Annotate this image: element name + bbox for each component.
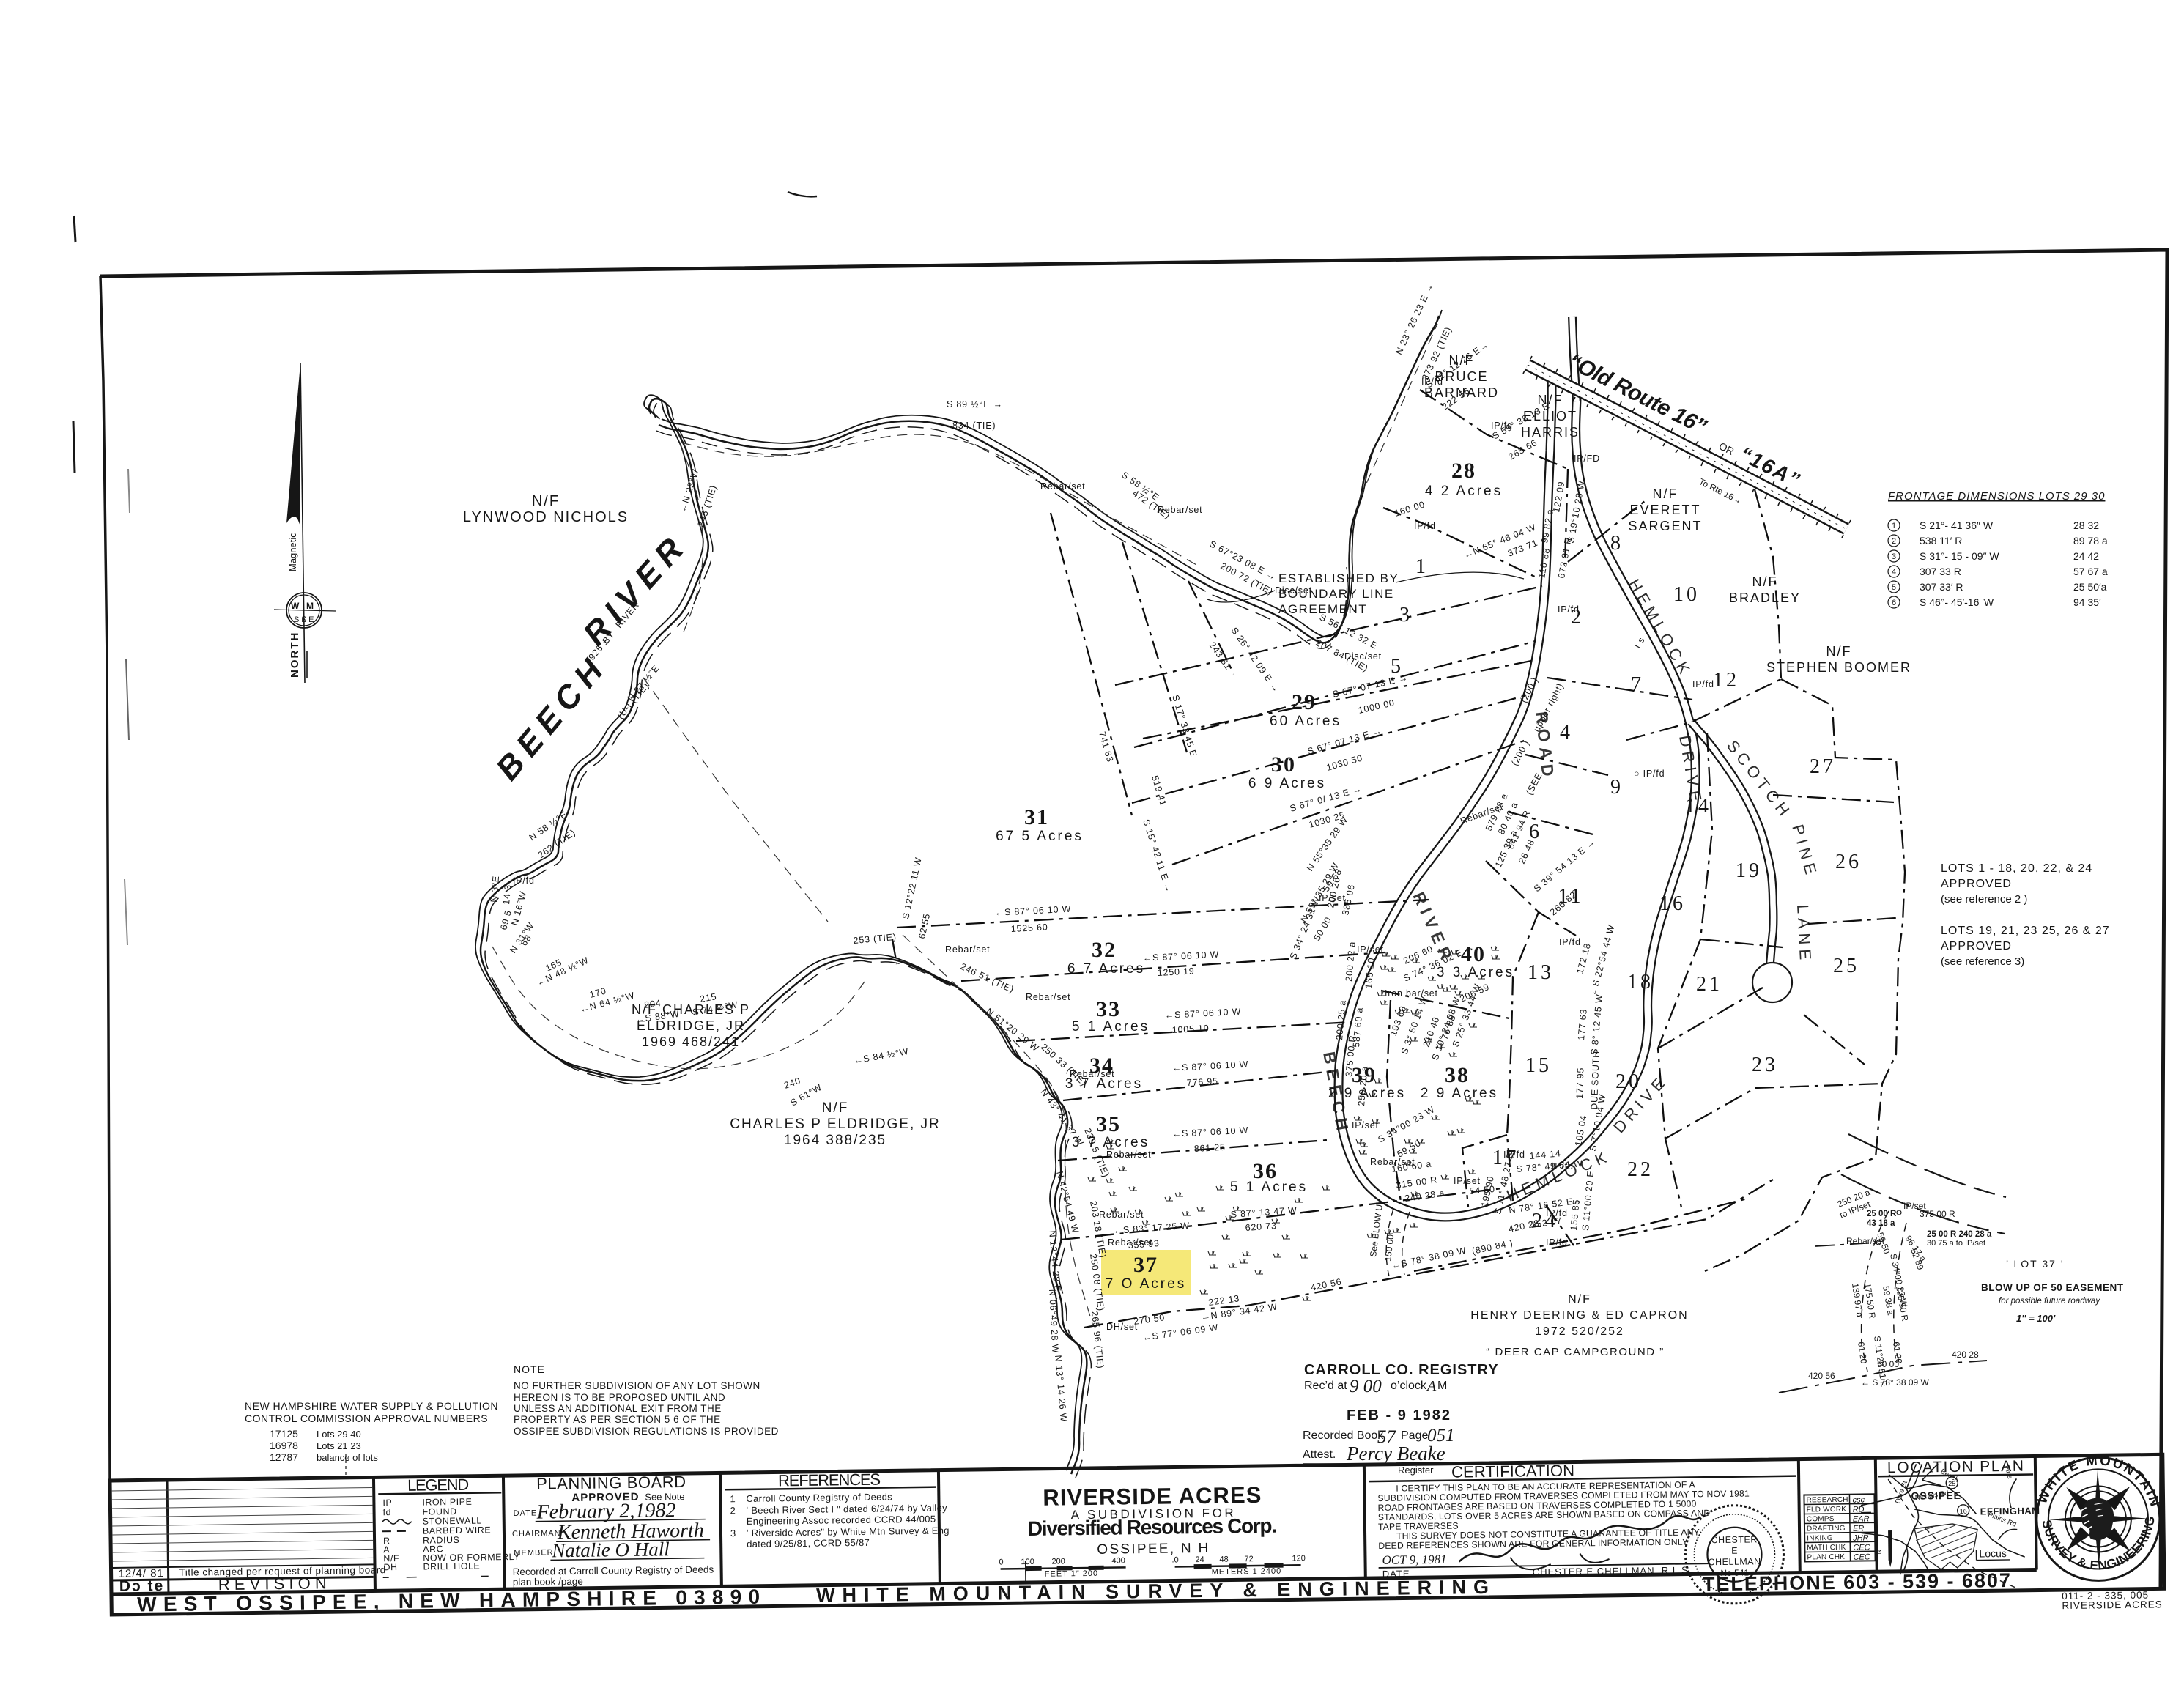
svg-text:16: 16: [1659, 892, 1686, 915]
svg-text:834 (TIE): 834 (TIE): [952, 421, 996, 431]
svg-text:3: 3: [730, 1528, 736, 1539]
svg-text:CHESTER E CHELLMAN, R L S: CHESTER E CHELLMAN, R L S: [1533, 1565, 1689, 1578]
svg-text:S 21°- 41 36″ W: S 21°- 41 36″ W: [1920, 519, 1994, 531]
svg-text:Rebar/set: Rebar/set: [1099, 1210, 1144, 1220]
svg-text:Rebar/set: Rebar/set: [1040, 481, 1085, 492]
svg-text:33: 33: [1096, 997, 1121, 1021]
svg-text:CONTROL COMMISSION APPROVAL: CONTROL COMMISSION APPROVAL NUMBERS: [245, 1413, 488, 1424]
svg-text:4: 4: [1560, 721, 1573, 744]
svg-text:Register: Register: [1398, 1465, 1434, 1476]
svg-text:5: 5: [1892, 583, 1896, 592]
svg-text:0: 0: [999, 1558, 1003, 1566]
svg-text:200: 200: [1051, 1557, 1065, 1566]
svg-text:1: 1: [730, 1493, 736, 1504]
svg-text:3: 3: [1399, 604, 1413, 626]
svg-text:dated 9/25/81, CCRD 55/87: dated 9/25/81, CCRD 55/87: [747, 1537, 870, 1550]
svg-text:307 33′ R: 307 33′ R: [1920, 581, 1963, 593]
svg-text:IP/set: IP/set: [1357, 944, 1384, 955]
svg-text:420 28: 420 28: [1952, 1350, 1979, 1360]
svg-text:IP/FD: IP/FD: [1574, 454, 1600, 464]
svg-text:MEMBER: MEMBER: [514, 1548, 553, 1558]
svg-text:IP/fd: IP/fd: [1546, 1208, 1568, 1218]
svg-text:25 00 R 240 28 a: 25 00 R 240 28 a: [1927, 1230, 1992, 1239]
svg-text:24: 24: [1195, 1555, 1204, 1564]
svg-text:FEB - 9 1982: FEB - 9 1982: [1347, 1407, 1451, 1424]
svg-text:32: 32: [1092, 938, 1117, 962]
svg-text:21: 21: [1696, 973, 1722, 996]
svg-text:S 31°- 15 - 09″ W: S 31°- 15 - 09″ W: [1920, 550, 1999, 562]
svg-text:13: 13: [1528, 961, 1554, 984]
svg-text:89 78 a: 89 78 a: [2073, 535, 2108, 547]
svg-text:SARGENT: SARGENT: [1628, 519, 1702, 533]
svg-text:12787: 12787: [270, 1451, 298, 1463]
svg-text:1: 1: [1892, 522, 1896, 530]
svg-text:16978: 16978: [270, 1440, 298, 1451]
svg-text:100: 100: [1021, 1558, 1034, 1566]
svg-text:538 11′ R: 538 11′ R: [1920, 535, 1962, 547]
svg-text:1005 10: 1005 10: [1171, 1023, 1209, 1035]
svg-text:IP/set: IP/set: [1454, 1176, 1481, 1186]
svg-text:Rebar/set: Rebar/set: [945, 944, 990, 955]
svg-text:Attest.: Attest.: [1303, 1448, 1336, 1461]
svg-text:22: 22: [1627, 1158, 1654, 1181]
svg-text:COMPS: COMPS: [1807, 1515, 1835, 1523]
svg-text:plan book /page: plan book /page: [513, 1576, 583, 1588]
svg-text:IP/fd: IP/fd: [1692, 679, 1714, 689]
svg-text:IP/set: IP/set: [1352, 1120, 1379, 1130]
svg-text:14: 14: [1685, 795, 1711, 818]
svg-text:UNLESS AN ADDITIONAL EXIT: UNLESS AN ADDITIONAL EXIT FROM THE: [514, 1403, 722, 1414]
svg-text:FRONTAGE DIMENSIONS LOTS 29: FRONTAGE DIMENSIONS LOTS 29 30: [1888, 490, 2105, 503]
svg-text:1″ = 100′: 1″ = 100′: [2016, 1313, 2056, 1324]
svg-text:6 9 Acres: 6 9 Acres: [1248, 776, 1326, 791]
svg-text:3: 3: [1892, 552, 1896, 561]
svg-text:CEC: CEC: [1853, 1543, 1870, 1552]
svg-text:30: 30: [1271, 752, 1296, 777]
svg-text:10: 10: [1673, 583, 1700, 606]
svg-text:26: 26: [1835, 851, 1862, 873]
svg-text:120: 120: [1292, 1554, 1306, 1563]
svg-text:csc: csc: [1852, 1495, 1865, 1504]
svg-text:38: 38: [1445, 1063, 1470, 1087]
svg-text:50 00: 50 00: [1877, 1359, 1899, 1369]
svg-text:620 73: 620 73: [1245, 1221, 1277, 1233]
svg-text:57 67 a: 57 67 a: [2073, 566, 2108, 577]
svg-text:M: M: [1437, 1380, 1447, 1392]
svg-text:Page: Page: [1401, 1429, 1428, 1442]
svg-text:ER: ER: [1853, 1525, 1864, 1533]
svg-text:29: 29: [1292, 690, 1317, 714]
svg-text:’ LOT 37 ’: ’ LOT 37 ’: [2006, 1258, 2065, 1270]
svg-text:N/F: N/F: [1568, 1293, 1591, 1306]
svg-text:2 9 Acres: 2 9 Acres: [1421, 1086, 1498, 1101]
svg-text:.0: .0: [1171, 1555, 1178, 1564]
svg-text:N/F: N/F: [822, 1100, 849, 1116]
svg-text:12: 12: [1713, 669, 1739, 692]
svg-text:355 93: 355 93: [1128, 1238, 1160, 1251]
svg-text:9 00: 9 00: [1350, 1377, 1382, 1396]
svg-text:RIVERSIDE ACRES: RIVERSIDE ACRES: [2062, 1599, 2162, 1611]
svg-text:N/F: N/F: [1826, 644, 1852, 659]
svg-text:(see reference 3): (see reference 3): [1941, 955, 2024, 968]
svg-text:2: 2: [1892, 537, 1896, 546]
svg-text:Disc/set: Disc/set: [1275, 585, 1312, 596]
svg-text:← S 78° 38 09 W: ← S 78° 38 09 W: [1861, 1377, 1930, 1388]
svg-text:MATH CHK: MATH CHK: [1807, 1544, 1846, 1552]
svg-text:Rebar/set: Rebar/set: [1106, 1150, 1151, 1160]
svg-text:LYNWOOD NICHOLS: LYNWOOD NICHOLS: [463, 509, 629, 525]
svg-text:○ IP/fd: ○ IP/fd: [1634, 769, 1665, 779]
svg-text:APPROVED: APPROVED: [1941, 940, 2012, 952]
svg-text:16: 16: [1960, 1508, 1967, 1515]
svg-text:400: 400: [1111, 1556, 1125, 1565]
svg-text:Locus: Locus: [1979, 1547, 2007, 1559]
svg-text:19: 19: [1736, 859, 1762, 882]
svg-text:(see reference 2 ): (see reference 2 ): [1941, 893, 2027, 906]
svg-text:Carroll County Registry of: Carroll County Registry of Deeds: [746, 1491, 892, 1504]
svg-text:JHR: JHR: [1852, 1533, 1869, 1542]
svg-text:M: M: [306, 601, 314, 611]
svg-text:Lots 21 23: Lots 21 23: [317, 1440, 361, 1451]
svg-text:PLANNING BOARD: PLANNING BOARD: [536, 1473, 686, 1493]
svg-text:177 95: 177 95: [1574, 1067, 1585, 1100]
svg-text:CHARLES P ELDRIDGE, JR: CHARLES P ELDRIDGE, JR: [730, 1117, 941, 1132]
svg-text:60 Acres: 60 Acres: [1270, 714, 1341, 729]
svg-text:DRAFTING: DRAFTING: [1807, 1525, 1846, 1533]
svg-text:o’clock: o’clock: [1391, 1380, 1427, 1392]
svg-text:Lots 29 40: Lots 29 40: [317, 1429, 361, 1440]
svg-text:TELEPHONE 603 - 539 - 6807: TELEPHONE 603 - 539 - 6807: [1703, 1569, 2010, 1595]
svg-text:FEET 1″ 200: FEET 1″ 200: [1045, 1569, 1099, 1579]
svg-text:N/F: N/F: [1752, 574, 1778, 589]
svg-text:4: 4: [1892, 568, 1896, 577]
svg-text:fd: fd: [382, 1507, 391, 1517]
svg-text:HARRIS: HARRIS: [1521, 425, 1580, 440]
svg-text:28 32: 28 32: [2073, 519, 2099, 531]
svg-text:FLD WORK: FLD WORK: [1807, 1506, 1847, 1514]
svg-text:14 3: 14 3: [501, 884, 513, 906]
svg-text:IP: IP: [382, 1498, 392, 1508]
svg-text:W: W: [291, 601, 300, 611]
svg-text:94 35′: 94 35′: [2073, 596, 2101, 608]
svg-text:balance of lots: balance of lots: [317, 1452, 378, 1463]
svg-text:RESEARCH: RESEARCH: [1806, 1496, 1848, 1505]
svg-text:18: 18: [1627, 971, 1654, 993]
svg-text:Percy Beake: Percy Beake: [1346, 1443, 1445, 1465]
svg-text:7: 7: [1631, 673, 1644, 696]
svg-text:LOTS 19, 21, 23 25, 26 & 2: LOTS 19, 21, 23 25, 26 & 27: [1941, 925, 2110, 937]
svg-text:1: 1: [1415, 555, 1429, 578]
svg-text:IP/fd: IP/fd: [1552, 1161, 1574, 1171]
svg-text:APPROVED: APPROVED: [1941, 878, 2012, 890]
svg-text:8: 8: [1610, 532, 1624, 555]
svg-text:Rebar/set: Rebar/set: [1026, 992, 1070, 1002]
svg-text:HEREON IS TO BE PROPOSED: HEREON IS TO BE PROPOSED UNTIL AND: [514, 1392, 725, 1403]
svg-text:BLOW UP OF 50 EASEMENT: BLOW UP OF 50 EASEMENT: [1981, 1282, 2124, 1293]
svg-text:A: A: [1426, 1378, 1437, 1394]
svg-text:4 2 Acres: 4 2 Acres: [1425, 484, 1503, 499]
svg-text:1250 19: 1250 19: [1157, 966, 1194, 978]
svg-text:Iron bar/set: Iron bar/set: [1385, 988, 1438, 999]
svg-text:DH/set: DH/set: [1106, 1322, 1138, 1332]
svg-text:CERTIFICATION: CERTIFICATION: [1451, 1462, 1574, 1481]
svg-text:N/F: N/F: [1653, 486, 1678, 501]
svg-text:2: 2: [730, 1505, 736, 1516]
svg-text:PLAN CHK: PLAN CHK: [1807, 1553, 1845, 1562]
svg-text:35: 35: [1096, 1112, 1121, 1136]
svg-text:T N: T N: [1875, 1550, 1882, 1560]
svg-text:1969 468/241: 1969 468/241: [642, 1034, 740, 1049]
svg-text:24 42: 24 42: [2073, 550, 2099, 562]
svg-text:CHESTER: CHESTER: [1711, 1534, 1758, 1545]
svg-text:LANE: LANE: [1794, 904, 1815, 965]
svg-text:EAR: EAR: [1853, 1514, 1870, 1523]
svg-text:31: 31: [1024, 805, 1049, 829]
svg-text:OSSIPEE SUBDIVISION REGULAT: OSSIPEE SUBDIVISION REGULATIONS IS PROVI…: [514, 1426, 779, 1437]
svg-text:7 O Acres: 7 O Acres: [1106, 1276, 1186, 1292]
svg-text:DH: DH: [383, 1562, 397, 1572]
svg-text:67 5 Acres: 67 5 Acres: [996, 829, 1084, 844]
svg-text:15: 15: [1525, 1054, 1552, 1077]
svg-text:1525 60: 1525 60: [1010, 922, 1048, 934]
svg-text:HENRY DEERING & ED CAPRON: HENRY DEERING & ED CAPRON: [1470, 1309, 1688, 1322]
svg-text:Recorded Book: Recorded Book: [1303, 1429, 1384, 1442]
svg-text:3 3 Acres: 3 3 Acres: [1437, 965, 1514, 980]
svg-text:ESTABLISHED BY: ESTABLISHED BY: [1278, 571, 1399, 585]
svg-text:IP/fd: IP/fd: [1559, 937, 1581, 947]
svg-text:1964 388/235: 1964 388/235: [784, 1133, 886, 1148]
svg-text:OCT 9, 1981: OCT 9, 1981: [1382, 1552, 1446, 1567]
svg-text:METERS 1 2400: METERS 1 2400: [1212, 1567, 1282, 1577]
svg-text:Diversified Resources Corp.: Diversified Resources Corp.: [1028, 1514, 1277, 1540]
svg-text:REFERENCES: REFERENCES: [778, 1470, 881, 1490]
svg-text:420 56: 420 56: [1808, 1371, 1835, 1381]
svg-text:DRILL HOLE: DRILL HOLE: [423, 1561, 480, 1572]
svg-text:NO FURTHER SUBDIVISION OF: NO FURTHER SUBDIVISION OF ANY LOT SHOWN: [514, 1380, 760, 1391]
svg-text:43 18 a: 43 18 a: [1867, 1219, 1895, 1228]
svg-text:25 50′a: 25 50′a: [2073, 581, 2107, 593]
svg-text:28: 28: [1451, 459, 1476, 483]
svg-text:5 1 Acres: 5 1 Acres: [1230, 1180, 1308, 1195]
svg-text:LOTS 1 - 18, 20, 22, & 24: LOTS 1 - 18, 20, 22, & 24: [1941, 862, 2092, 875]
svg-text:DATE: DATE: [514, 1509, 538, 1518]
svg-text:NORTH: NORTH: [289, 632, 301, 678]
svg-text:23: 23: [1752, 1054, 1778, 1076]
svg-text:776 95: 776 95: [1186, 1076, 1218, 1088]
svg-text:CHAIRMAN: CHAIRMAN: [512, 1529, 561, 1539]
svg-text:IP/fd: IP/fd: [1558, 604, 1580, 615]
svg-text:STEPHEN BOOMER: STEPHEN BOOMER: [1766, 660, 1911, 675]
svg-text:27: 27: [1810, 755, 1836, 778]
svg-text:Rec’d at: Rec’d at: [1304, 1380, 1347, 1392]
svg-text:NEW HAMPSHIRE WATER SUPPLY: NEW HAMPSHIRE WATER SUPPLY & POLLUTION: [245, 1400, 498, 1412]
svg-text:“ DEER CAP CAMPGROUND ”: “ DEER CAP CAMPGROUND ”: [1486, 1346, 1664, 1358]
svg-text:E: E: [1731, 1546, 1738, 1556]
svg-text:EVERETT: EVERETT: [1629, 503, 1700, 517]
svg-text:for possible future roadway: for possible future roadway: [1999, 1297, 2100, 1306]
svg-text:6 7 Acres: 6 7 Acres: [1067, 961, 1145, 977]
svg-text:Magnetic: Magnetic: [287, 533, 298, 571]
svg-text:375 00 R: 375 00 R: [1920, 1209, 1955, 1219]
svg-text:S 89 ½°E →: S 89 ½°E →: [947, 399, 1003, 410]
svg-text:Rebar/set: Rebar/set: [1158, 505, 1202, 515]
svg-text:72: 72: [1244, 1555, 1253, 1563]
svg-text:5 1 Acres: 5 1 Acres: [1072, 1019, 1150, 1034]
svg-text:N/F: N/F: [532, 493, 560, 509]
svg-text:IP/fd: IP/fd: [1414, 521, 1436, 531]
svg-text:Disc/set: Disc/set: [1344, 651, 1382, 662]
svg-text:Rebar/set: Rebar/set: [1070, 1069, 1114, 1079]
svg-text:IP/fd: IP/fd: [513, 876, 535, 886]
svg-text:BRADLEY: BRADLEY: [1729, 591, 1801, 605]
svg-text:CHELLMAN: CHELLMAN: [1708, 1556, 1761, 1567]
svg-text:NOTE: NOTE: [514, 1363, 545, 1375]
svg-text:25: 25: [1833, 955, 1859, 977]
svg-text:20: 20: [1615, 1070, 1642, 1093]
svg-text:25 00 R: 25 00 R: [1867, 1210, 1897, 1218]
svg-text:Rebar/set: Rebar/set: [1370, 1157, 1415, 1167]
svg-text:17125: 17125: [270, 1428, 298, 1440]
svg-text:37: 37: [1133, 1253, 1158, 1277]
svg-text:IP/fd: IP/fd: [1491, 421, 1513, 431]
svg-text:861 25: 861 25: [1193, 1142, 1226, 1154]
svg-text:48: 48: [1219, 1555, 1228, 1564]
svg-text:CARROLL CO. REGISTRY: CARROLL CO. REGISTRY: [1304, 1362, 1499, 1378]
svg-text:S ß E: S ß E: [294, 615, 314, 624]
svg-text:1972 520/252: 1972 520/252: [1535, 1325, 1624, 1338]
svg-text:Dɔ te: Dɔ te: [119, 1577, 165, 1595]
svg-text:Natalie O Hall: Natalie O Hall: [551, 1538, 670, 1561]
svg-text:6: 6: [1892, 599, 1896, 607]
svg-text:IP/fd: IP/fd: [1546, 1237, 1568, 1248]
svg-text:LEGEND: LEGEND: [407, 1476, 469, 1495]
svg-text:S 46°- 45′-16 ′W: S 46°- 45′-16 ′W: [1920, 596, 1994, 608]
svg-text:9: 9: [1610, 776, 1624, 799]
svg-text:PROPERTY AS PER SECTION 5: PROPERTY AS PER SECTION 5 6 OF THE: [514, 1414, 721, 1425]
svg-text:INKING: INKING: [1807, 1534, 1833, 1542]
svg-text:CEC: CEC: [1853, 1552, 1870, 1561]
svg-text:307 33 R: 307 33 R: [1920, 566, 1961, 577]
svg-text:30 75 a to IP/set: 30 75 a to IP/set: [1927, 1239, 1985, 1248]
